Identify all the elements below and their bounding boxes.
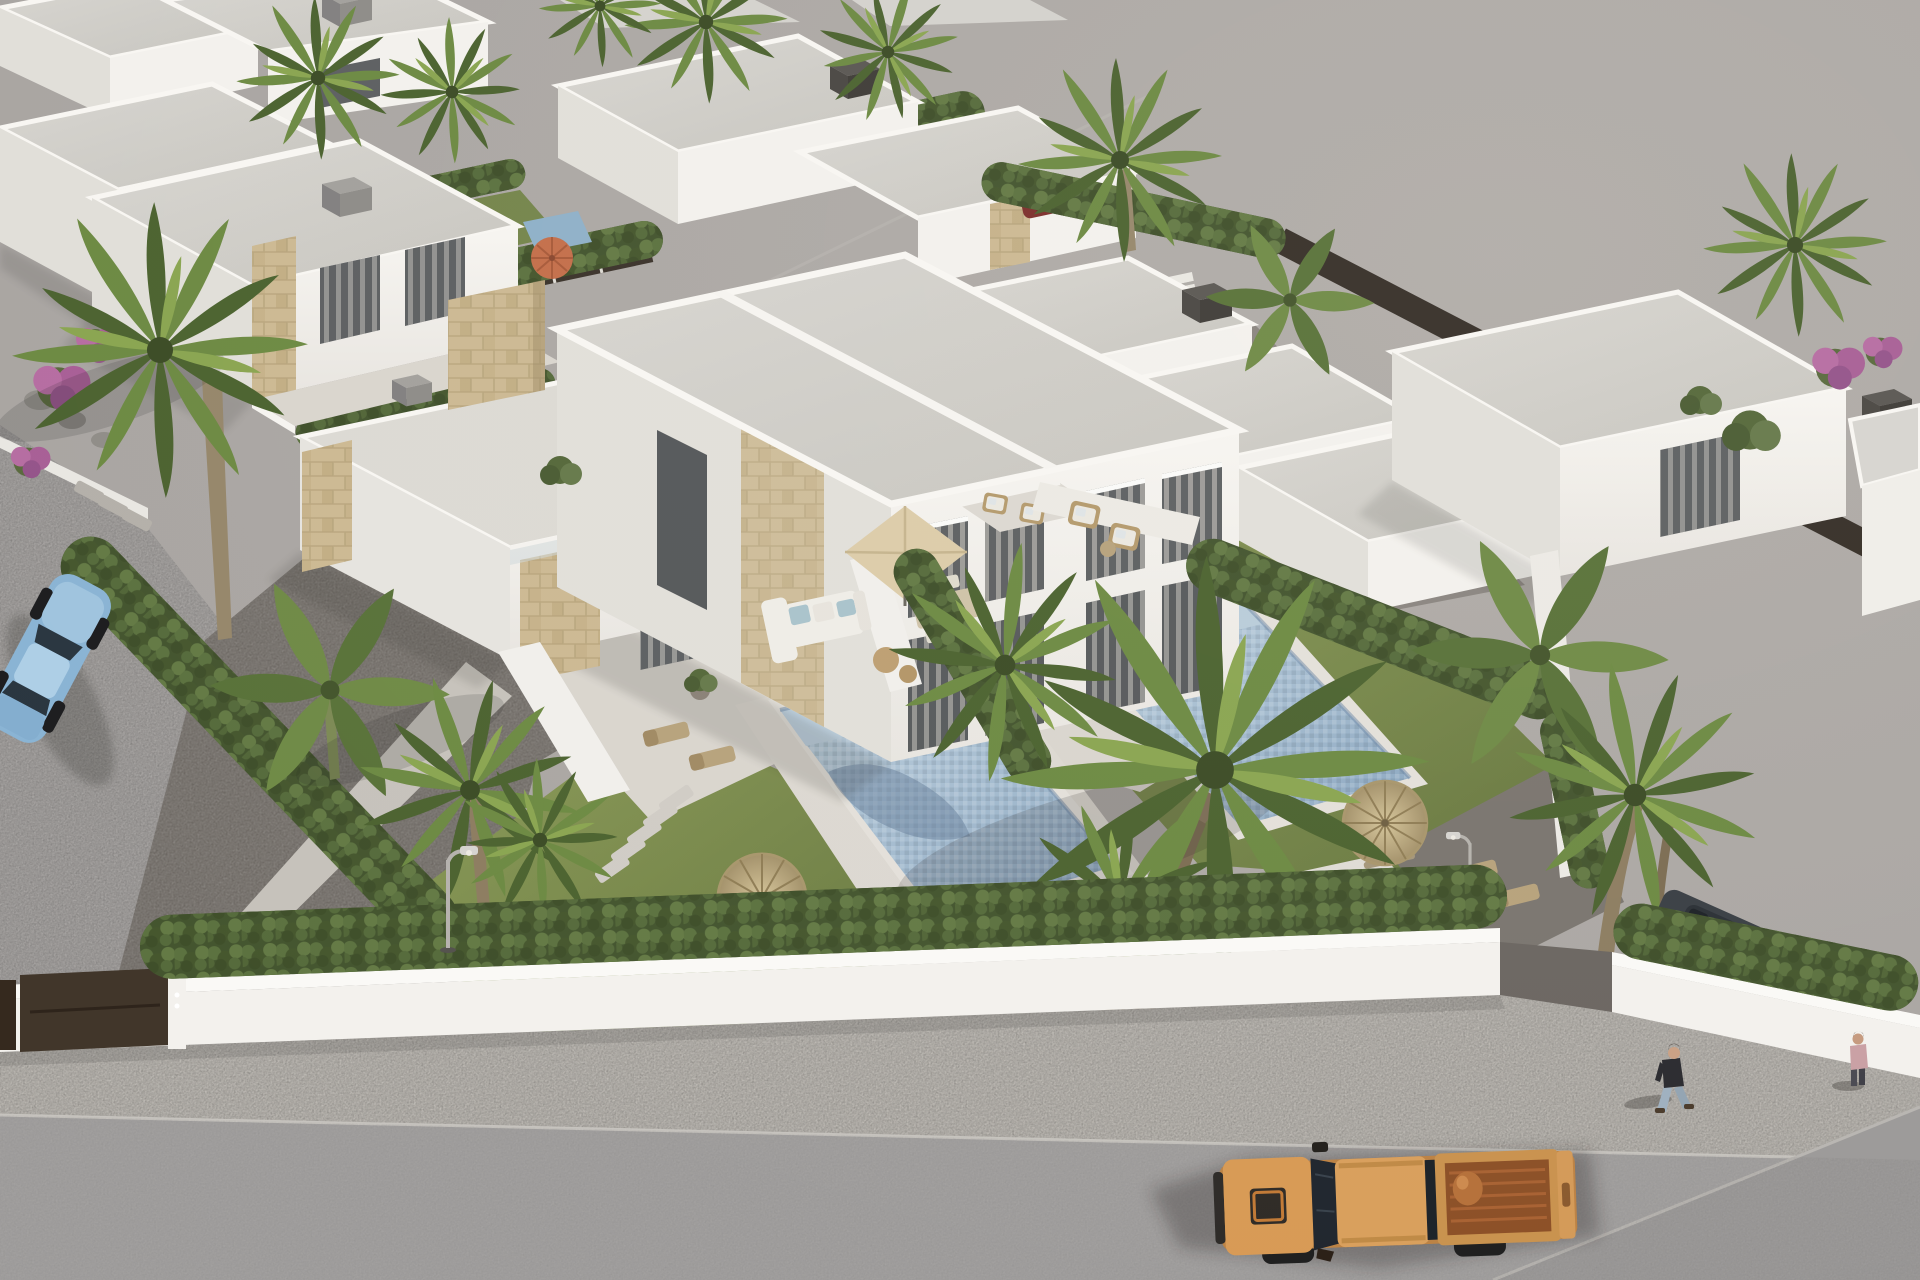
scene: Aerial 3D architectural rendering of a m… xyxy=(0,0,1920,1280)
aerial-render xyxy=(0,0,1920,1280)
light-overlay xyxy=(0,0,1920,1280)
